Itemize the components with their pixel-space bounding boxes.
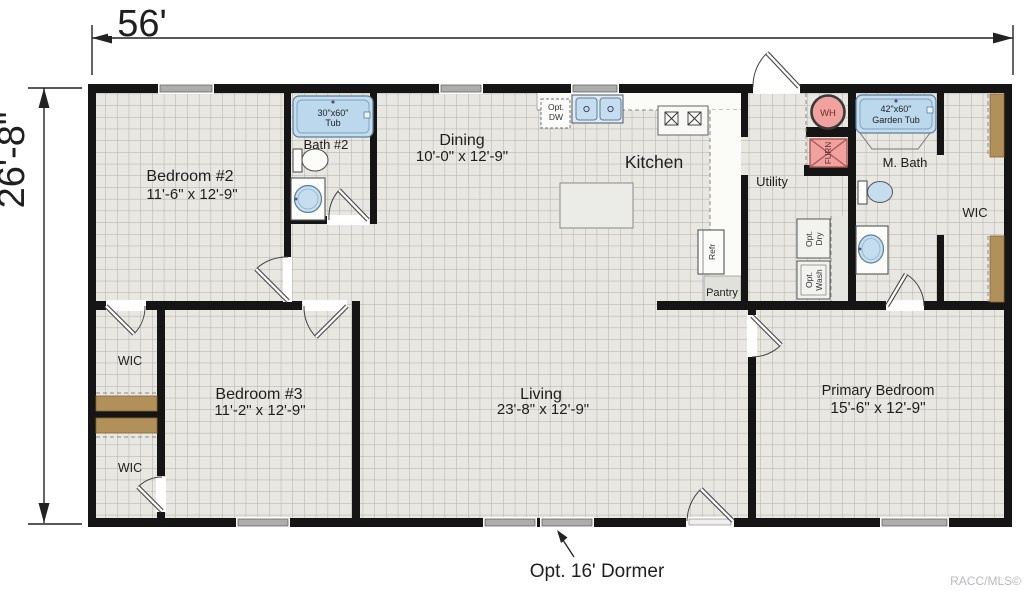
floor-plan-drawing: Bedroom #2 11'-6" x 12'-9" Bath #2 Dinin… [0,0,1024,591]
washer-label-2: Wash [814,269,824,291]
window [571,83,619,94]
window [236,517,290,528]
dishwasher-label-1: Opt. [548,102,564,112]
width-dimension: 56' [92,2,1013,75]
mbath-vanity [856,226,888,274]
washer-label-1: Opt. [804,272,814,288]
mbath-toilet [858,181,893,204]
bath2-label: Bath #2 [304,137,349,152]
window [540,517,594,528]
dishwasher-label-2: DW [549,112,563,122]
watermark: RACC/MLS© [950,574,1021,588]
stove [658,106,708,135]
wic-upper-label: WIC [118,354,142,368]
depth-dimension: 26'-8" [0,88,82,524]
floor-plan-page: Bedroom #2 11'-6" x 12'-9" Bath #2 Dinin… [0,0,1024,591]
window [483,517,537,528]
bedroom2-label: Bedroom #2 [146,168,233,185]
kitchen-sink [572,95,623,123]
tub-size-label: 30"x60" [318,108,349,118]
primary-label: Primary Bedroom [822,383,935,399]
wic-lower-label: WIC [118,461,142,475]
bedroom3-label: Bedroom #3 [215,386,302,403]
garden-tub-size-label: 42"x60" [881,104,912,114]
dormer-annotation: Opt. 16' Dormer [530,530,665,582]
bedroom3-size: 11'-2" x 12'-9" [214,402,305,419]
primary-size: 15'-6" x 12'-9" [830,400,925,417]
furnace-label: FURN [824,142,833,164]
tub-label: Tub [325,118,340,128]
shelf [988,94,1004,157]
window [880,517,949,528]
width-dimension-label: 56' [117,3,167,45]
garden-tub-label: Garden Tub [872,115,920,125]
mbath-label: M. Bath [883,155,928,170]
pantry-label: Pantry [706,287,738,299]
wic-right-label: WIC [962,205,987,220]
living-size: 23'-8" x 12'-9" [497,401,589,418]
utility-counter [831,216,848,302]
depth-dimension-label: 26'-8" [0,112,33,209]
shelf [96,393,157,411]
dryer-label-2: Dry [814,232,824,246]
utility-exterior-door [753,53,799,87]
shelf [988,236,1004,302]
kitchen-island [560,183,633,228]
dormer-label: Opt. 16' Dormer [530,561,665,582]
bath2-toilet [293,149,328,172]
dryer-label-1: Opt. [804,231,814,247]
refrigerator-label: Refr [707,244,717,260]
utility-label: Utility [756,174,788,189]
window [158,83,214,94]
window [439,83,483,94]
bedroom2-size: 11'-6" x 12'-9" [146,186,237,203]
kitchen-label: Kitchen [625,152,683,172]
dining-size: 10'-0" x 12'-9" [416,148,508,165]
dining-label: Dining [439,132,484,149]
bath2-vanity [291,178,325,220]
water-heater-label: WH [820,108,836,119]
